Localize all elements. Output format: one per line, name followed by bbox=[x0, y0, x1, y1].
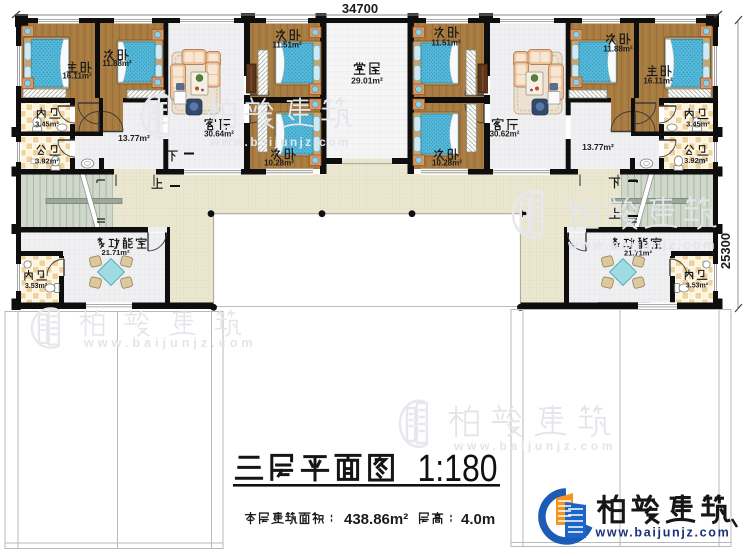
svg-text:21.71m²: 21.71m² bbox=[102, 248, 130, 257]
svg-text:11.88m²: 11.88m² bbox=[102, 59, 132, 68]
svg-text:13.77m²: 13.77m² bbox=[582, 142, 614, 152]
svg-text:3.53m²: 3.53m² bbox=[686, 283, 709, 290]
svg-text:3.45m²: 3.45m² bbox=[35, 120, 59, 129]
svg-text:3.92m²: 3.92m² bbox=[684, 156, 708, 165]
svg-text:16.11m²: 16.11m² bbox=[643, 77, 673, 86]
svg-text:10.28m²: 10.28m² bbox=[432, 159, 462, 168]
svg-text:www.baijunjz.com: www.baijunjz.com bbox=[209, 135, 350, 149]
svg-text:438.86m²: 438.86m² bbox=[344, 511, 408, 528]
svg-text:10.28m²: 10.28m² bbox=[264, 159, 294, 168]
svg-text:3.53m²: 3.53m² bbox=[25, 283, 48, 290]
svg-text:16.11m²: 16.11m² bbox=[62, 72, 92, 81]
svg-text:11.51m²: 11.51m² bbox=[431, 39, 461, 48]
svg-text:13.77m²: 13.77m² bbox=[118, 133, 150, 143]
svg-text:www.baijunjz.com: www.baijunjz.com bbox=[567, 237, 716, 252]
svg-text:1:180: 1:180 bbox=[418, 448, 498, 490]
svg-text:3.45m²: 3.45m² bbox=[686, 120, 710, 129]
svg-text:4.0m: 4.0m bbox=[461, 511, 495, 528]
svg-text:3.92m²: 3.92m² bbox=[35, 157, 59, 166]
svg-text:25300: 25300 bbox=[718, 233, 733, 269]
svg-text:34700: 34700 bbox=[342, 1, 378, 16]
svg-text:www.baijunjz.com: www.baijunjz.com bbox=[83, 336, 254, 350]
svg-text:11.88m²: 11.88m² bbox=[603, 45, 633, 54]
svg-text:30.62m²: 30.62m² bbox=[490, 130, 520, 139]
svg-text:29.01m²: 29.01m² bbox=[351, 76, 383, 86]
svg-text:www.baijunjz.com: www.baijunjz.com bbox=[595, 526, 730, 540]
svg-text:11.51m²: 11.51m² bbox=[272, 41, 302, 50]
